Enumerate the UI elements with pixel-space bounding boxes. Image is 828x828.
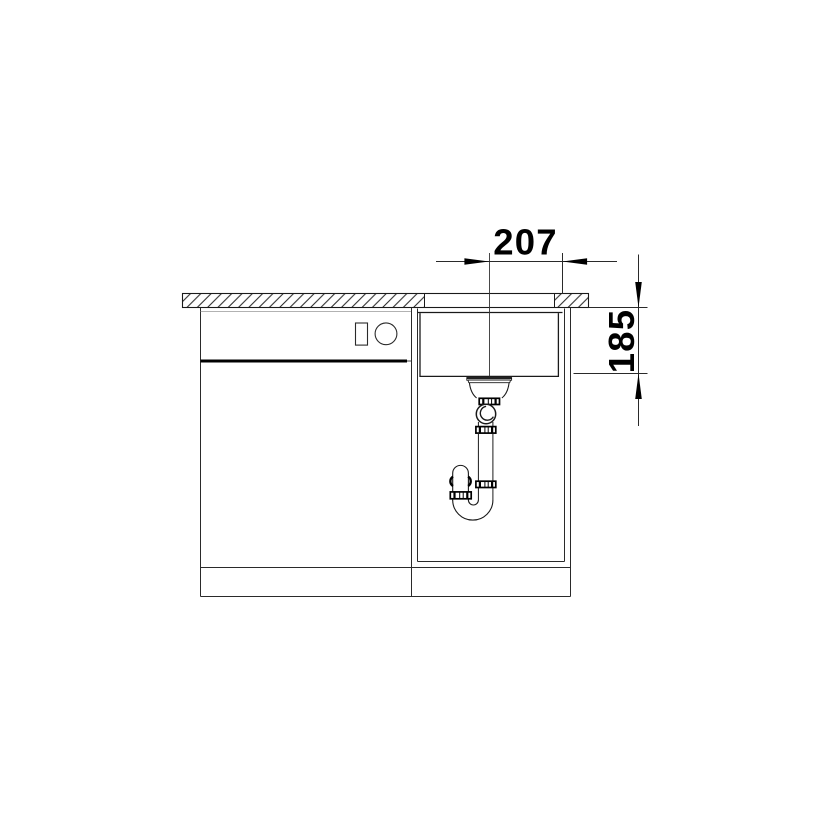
svg-text:207: 207 [493,222,558,263]
svg-text:185: 185 [601,309,642,374]
